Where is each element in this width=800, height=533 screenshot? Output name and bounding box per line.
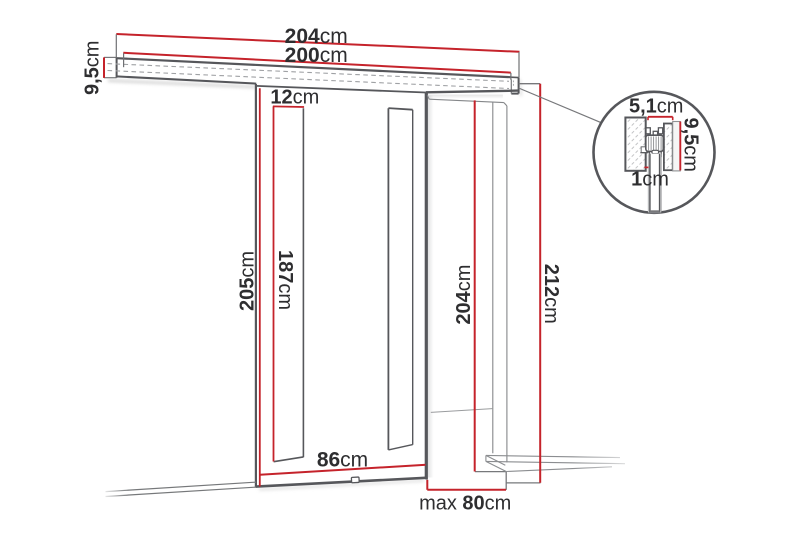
svg-text:86cm: 86cm bbox=[317, 448, 368, 471]
svg-text:5,1cm: 5,1cm bbox=[629, 96, 683, 118]
svg-text:12cm: 12cm bbox=[270, 86, 319, 108]
svg-text:204cm: 204cm bbox=[453, 265, 475, 325]
svg-text:205cm: 205cm bbox=[237, 251, 259, 311]
svg-text:max 80cm: max 80cm bbox=[419, 492, 511, 514]
svg-text:1cm: 1cm bbox=[631, 169, 669, 191]
svg-text:200cm: 200cm bbox=[285, 44, 348, 67]
svg-text:187cm: 187cm bbox=[274, 250, 296, 310]
svg-text:9,5cm: 9,5cm bbox=[680, 117, 702, 171]
svg-text:9,5cm: 9,5cm bbox=[81, 41, 103, 95]
svg-text:212cm: 212cm bbox=[540, 264, 562, 324]
